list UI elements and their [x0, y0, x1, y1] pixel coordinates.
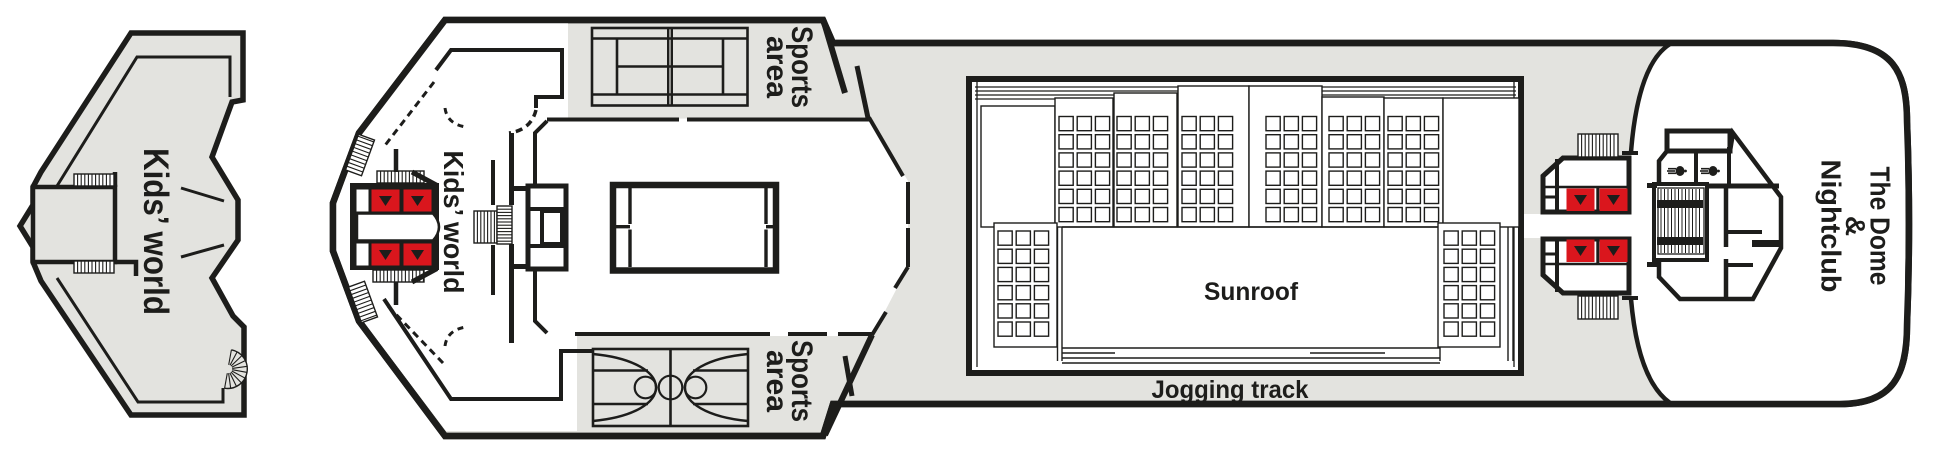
svg-text:area: area [760, 36, 793, 98]
svg-text:Nightclub: Nightclub [1816, 160, 1847, 293]
svg-text:Jogging track: Jogging track [1152, 376, 1309, 404]
svg-text:area: area [760, 350, 793, 412]
svg-text:Kids’ world: Kids’ world [438, 151, 469, 294]
svg-text:Sunroof: Sunroof [1204, 278, 1299, 306]
svg-text:Kids’ world: Kids’ world [136, 148, 175, 315]
